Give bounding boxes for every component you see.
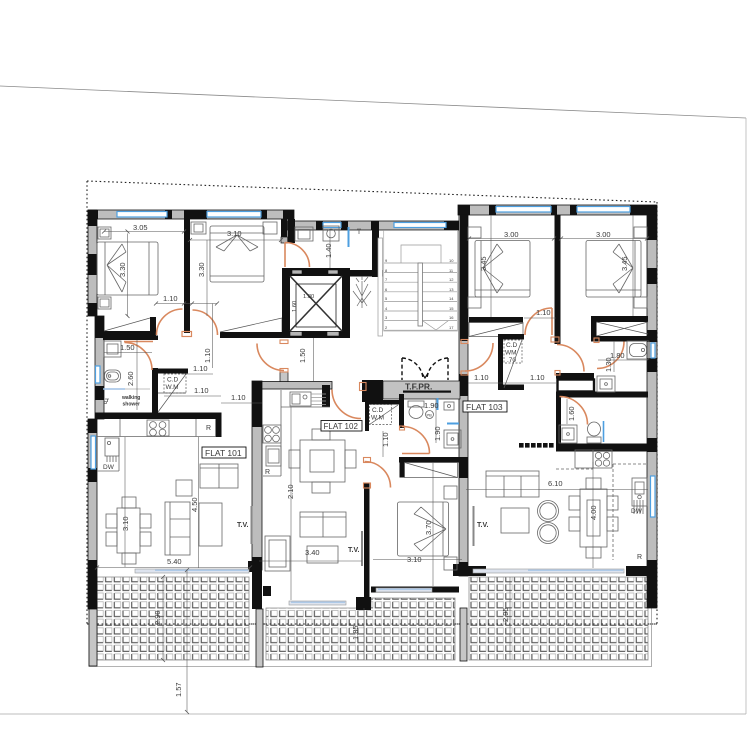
svg-text:DW: DW [103,464,115,471]
svg-text:T.F.PR.: T.F.PR. [405,382,432,392]
svg-text:T.V.: T.V. [237,522,248,529]
svg-text:1.10: 1.10 [231,393,246,402]
svg-text:R: R [265,469,270,476]
svg-text:1.50: 1.50 [298,348,307,363]
svg-text:C.D: C.D [372,407,384,414]
svg-text:1.10: 1.10 [163,294,178,303]
svg-text:FLAT 103: FLAT 103 [466,402,503,412]
svg-text:1.30: 1.30 [604,357,613,372]
svg-text:1.85: 1.85 [351,625,360,640]
svg-text:2: 2 [385,325,388,330]
svg-text:4: 4 [385,306,388,311]
svg-text:13: 13 [449,287,454,292]
svg-text:3: 3 [385,315,388,320]
svg-text:1.60: 1.60 [292,301,298,312]
svg-text:C.D: C.D [506,342,518,349]
svg-text:15: 15 [449,306,454,311]
svg-text:WM: WM [505,350,517,357]
svg-text:2.95: 2.95 [501,607,510,622]
svg-text:6.10: 6.10 [548,479,563,488]
svg-text:2.60: 2.60 [126,371,135,386]
svg-text:1.90: 1.90 [433,426,442,441]
svg-text:3.10: 3.10 [407,555,422,564]
svg-text:17: 17 [449,325,454,330]
svg-text:T.V.: T.V. [348,547,359,554]
svg-text:7: 7 [385,277,388,282]
svg-text:walking: walking [121,395,140,401]
svg-text:FLAT 101: FLAT 101 [205,448,242,458]
svg-text:6: 6 [385,287,388,292]
svg-text:1.10: 1.10 [193,364,208,373]
svg-text:R: R [206,425,211,432]
svg-text:PB: PB [427,413,433,418]
svg-text:1.10: 1.10 [530,373,545,382]
svg-text:2.10: 2.10 [286,484,295,499]
svg-text:3.30: 3.30 [118,262,127,277]
svg-text:DW: DW [631,508,643,515]
svg-text:10: 10 [449,258,454,263]
svg-text:3.00: 3.00 [504,230,519,239]
svg-text:2.90: 2.90 [153,610,162,625]
svg-text:3.70: 3.70 [424,520,433,535]
svg-text:3.10: 3.10 [121,516,130,531]
svg-text:5: 5 [385,296,388,301]
svg-text:C.D: C.D [167,377,179,384]
svg-text:1.10: 1.10 [381,432,390,447]
svg-text:12: 12 [449,277,454,282]
svg-text:T.V.: T.V. [477,522,488,529]
svg-text:1.60: 1.60 [567,406,576,421]
svg-text:.70: .70 [507,357,516,364]
svg-text:4.50: 4.50 [190,497,199,512]
svg-text:1.40: 1.40 [324,243,333,258]
svg-text:1.10: 1.10 [536,308,551,317]
svg-text:W.M: W.M [371,415,384,422]
svg-text:3.00: 3.00 [596,230,611,239]
svg-text:1.50: 1.50 [120,343,135,352]
svg-text:14: 14 [449,296,454,301]
svg-text:3.45: 3.45 [620,256,629,271]
svg-text:9: 9 [385,258,388,263]
svg-text:1.57: 1.57 [174,682,183,697]
svg-text:1.10: 1.10 [194,386,209,395]
svg-text:3.05: 3.05 [133,223,148,232]
svg-text:3.40: 3.40 [305,548,320,557]
svg-text:3.45: 3.45 [479,256,488,271]
svg-text:5.40: 5.40 [167,557,182,566]
svg-text:shower: shower [123,402,141,408]
svg-text:1.10: 1.10 [474,373,489,382]
svg-text:3.30: 3.30 [197,262,206,277]
svg-text:W.M: W.M [166,384,179,391]
svg-text:3.10: 3.10 [227,229,242,238]
svg-text:1.10: 1.10 [203,348,212,363]
svg-text:R: R [637,554,642,561]
svg-text:FLAT 102: FLAT 102 [324,422,359,431]
svg-text:16: 16 [449,315,454,320]
svg-text:1.90: 1.90 [424,401,439,410]
svg-text:1.80: 1.80 [303,294,314,300]
svg-text:4.00: 4.00 [589,505,598,520]
